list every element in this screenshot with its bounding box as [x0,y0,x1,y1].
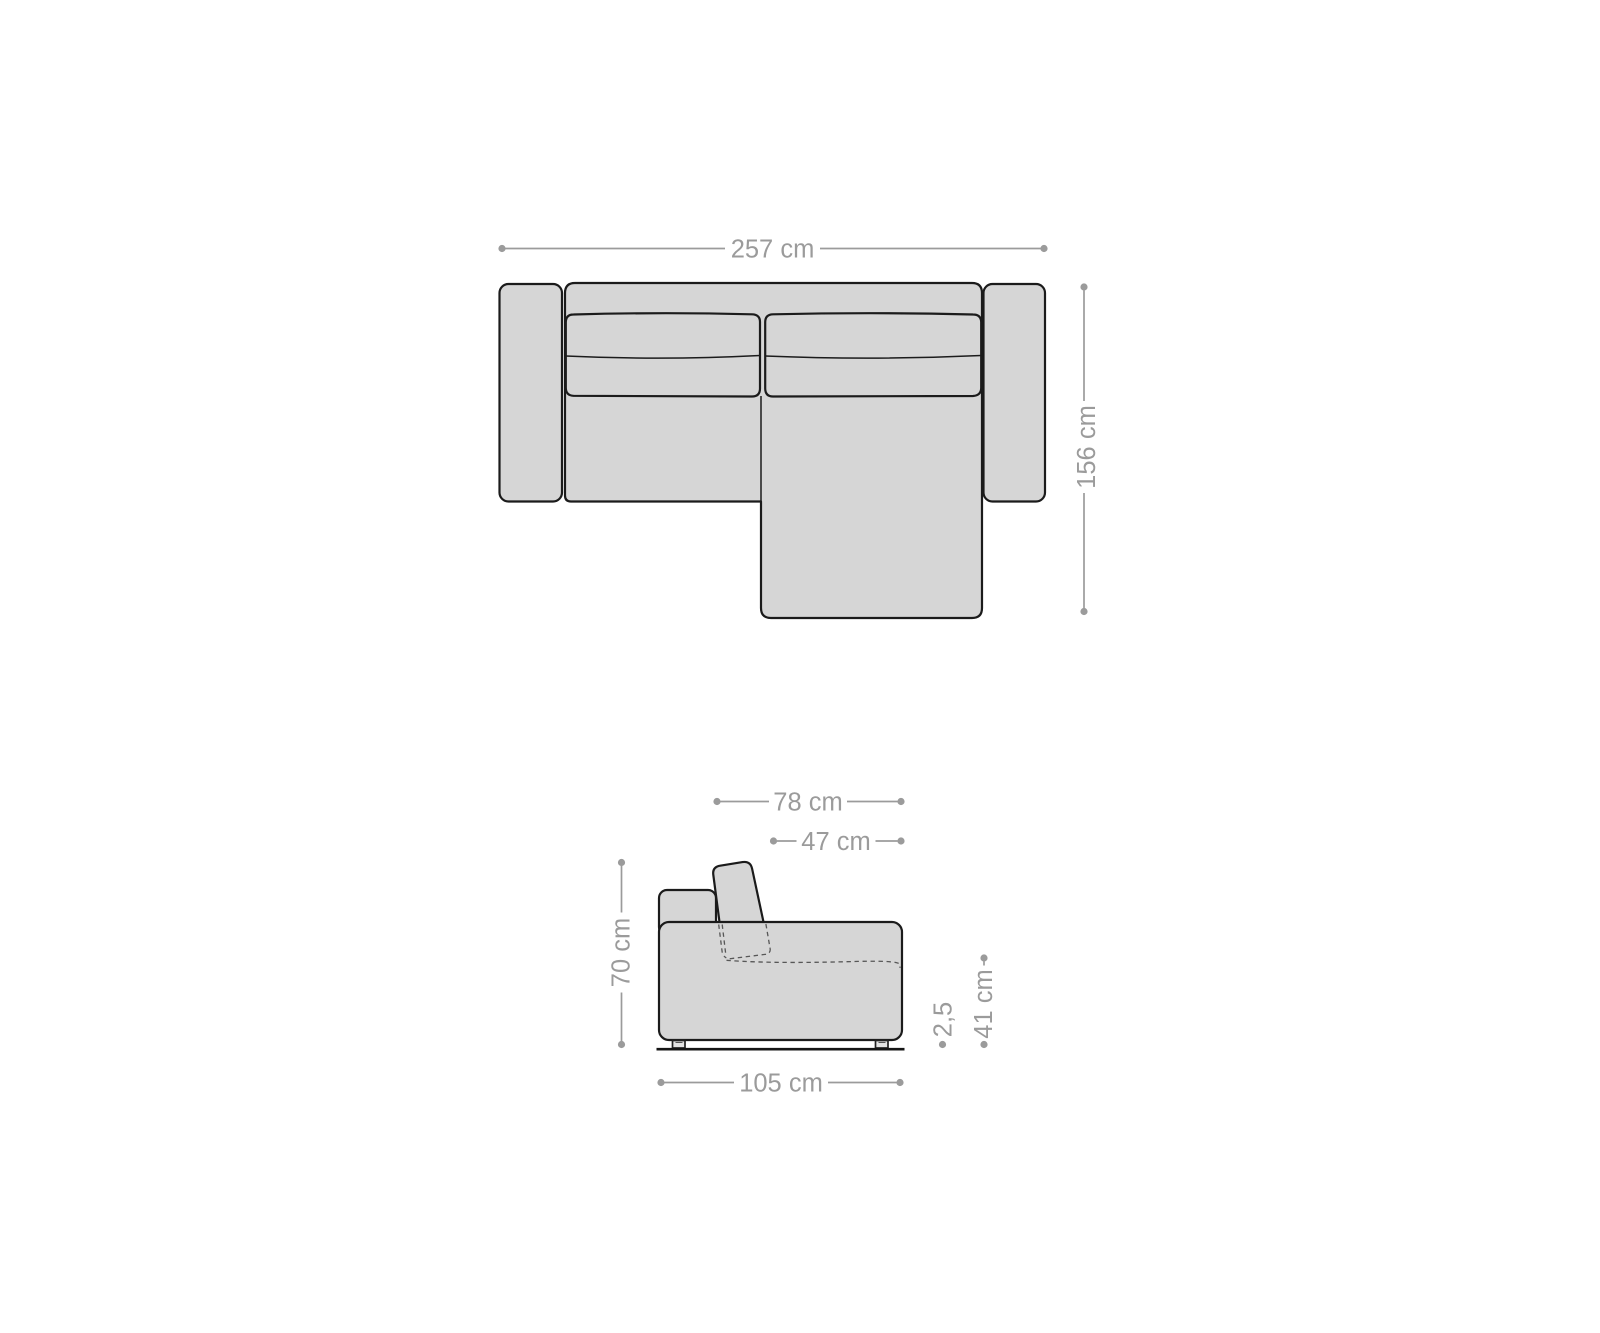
svg-text:105 cm: 105 cm [739,1070,823,1098]
svg-text:78 cm: 78 cm [773,789,842,817]
svg-text:156 cm: 156 cm [1073,405,1101,489]
svg-text:41 cm: 41 cm [970,969,998,1038]
svg-text:70 cm: 70 cm [608,918,636,987]
svg-text:257 cm: 257 cm [731,236,815,264]
svg-text:2,5: 2,5 [930,1002,958,1037]
svg-text:47 cm: 47 cm [801,828,870,856]
